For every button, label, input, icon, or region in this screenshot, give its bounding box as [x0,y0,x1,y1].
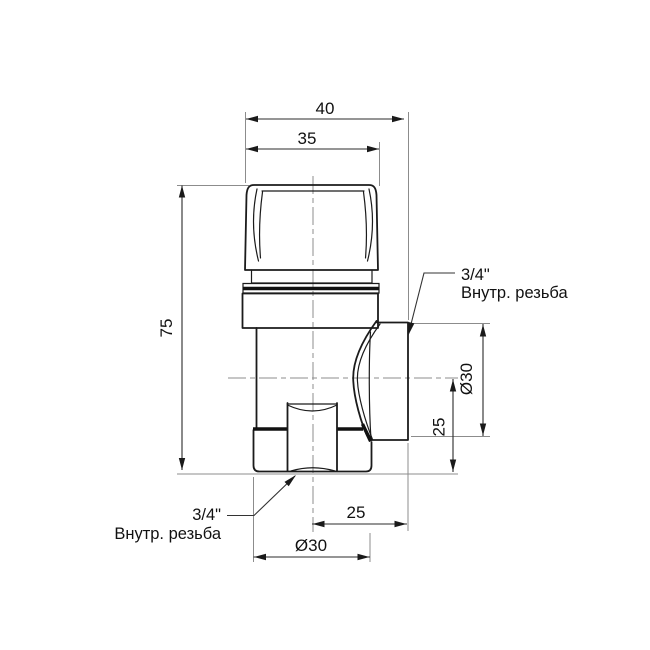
extension-lines [177,112,490,562]
inlet-thread-type-label: Внутр. резьба [114,525,221,543]
centerlines [228,176,458,532]
valve-inlet-nut [253,403,372,472]
inlet-thread-size-label: 3/4" [192,506,221,524]
valve-cap [245,185,378,270]
technical-drawing-canvas: 40 35 75 Ø30 25 25 Ø30 [0,0,650,650]
dim-outlet-axis-offset-value: 25 [430,418,449,437]
cap-ring [252,270,373,283]
flange-band [243,284,379,294]
dim-inlet-center-offset-value: 25 [347,503,366,522]
dimension-inlet-center-offset: 25 [312,503,407,527]
dimension-overall-depth: 40 [246,99,404,122]
dimension-body-height: 75 [157,186,185,471]
dimension-inlet-diameter: Ø30 [254,536,371,560]
valve-bonnet [243,294,379,329]
outlet-thread-type-label: Внутр. резьба [461,284,568,302]
valve-body-drawing [243,185,409,472]
dimension-outlet-axis-offset: 25 [430,379,457,472]
outlet-thread-size-label: 3/4" [461,266,490,284]
valve-outlet-port [353,321,408,441]
dim-overall-depth-value: 40 [316,99,335,118]
outlet-thread-leader: 3/4" Внутр. резьба [408,266,568,335]
dim-body-height-value: 75 [157,319,176,338]
cap-knurl-right [364,189,373,261]
cap-knurl-left [254,189,263,261]
dimension-cap-width: 35 [246,129,379,152]
valve-drawing: 40 35 75 Ø30 25 25 Ø30 [0,0,650,650]
dim-outlet-diameter-value: Ø30 [457,363,476,395]
inlet-thread-leader: 3/4" Внутр. резьба [114,475,296,543]
dim-inlet-diameter-value: Ø30 [295,536,327,555]
dimension-outlet-diameter: Ø30 [457,324,486,436]
dim-cap-width-value: 35 [298,129,317,148]
